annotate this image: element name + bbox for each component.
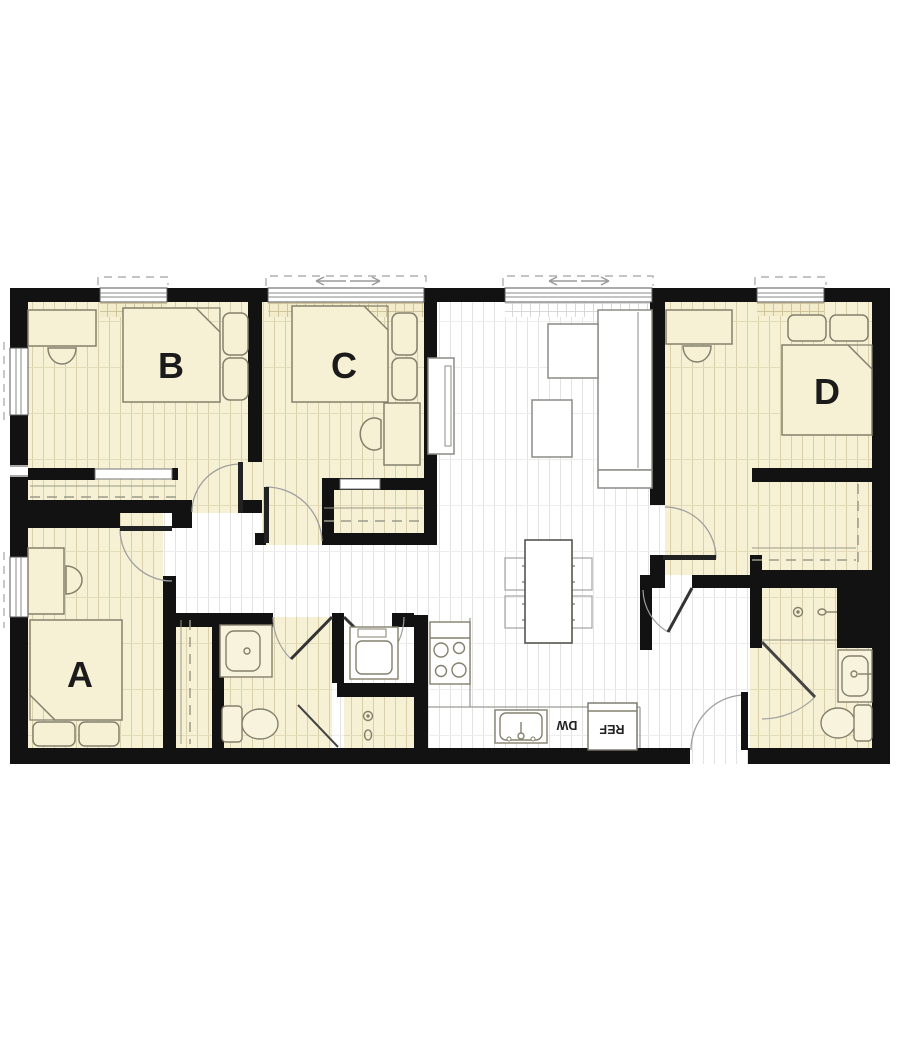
bedroom-a-label: A — [67, 654, 93, 695]
dining-table-icon — [525, 540, 572, 643]
toilet-tank — [222, 706, 242, 742]
window-c-top — [268, 288, 424, 302]
pillow-icon — [830, 315, 868, 341]
desk-icon — [28, 548, 64, 614]
pillow-icon — [392, 358, 417, 400]
burner-icon — [454, 643, 465, 654]
faucet-icon — [244, 648, 250, 654]
sofa-icon — [598, 310, 652, 470]
pillow-icon — [223, 358, 248, 400]
toilet-icon — [242, 709, 278, 739]
toilet-icon — [821, 708, 855, 738]
shower-1-floor — [344, 695, 425, 748]
faucet-icon — [851, 671, 857, 677]
faucet-icon — [518, 733, 524, 739]
wall-break — [10, 465, 28, 477]
bedroom-c-label: C — [331, 345, 357, 386]
floor-plan-page: DW REF B — [0, 0, 900, 1051]
floor-plan-drawing: DW REF B — [0, 0, 900, 1051]
laundry-closet — [350, 627, 398, 679]
desk-icon — [28, 310, 96, 346]
desk-chair-icon — [360, 418, 381, 450]
wall-b-c — [248, 302, 262, 462]
toilet-tank — [854, 705, 872, 741]
burner-icon — [434, 643, 448, 657]
dishwasher-label: DW — [556, 718, 577, 732]
bathroom-sink-icon — [226, 631, 260, 671]
bedroom-d-label: D — [814, 371, 840, 412]
pillow-icon — [79, 722, 119, 746]
window-b-left — [10, 348, 28, 415]
desk-icon — [666, 310, 732, 344]
desk-icon — [384, 403, 420, 465]
sill-band — [757, 302, 824, 316]
window-a-left — [10, 557, 28, 617]
washer-panel — [358, 629, 386, 637]
burner-icon — [436, 666, 447, 677]
pillow-icon — [33, 722, 75, 746]
refrigerator-label: REF — [599, 722, 624, 736]
sliding-window-arrows — [316, 277, 609, 285]
coffee-table-icon — [532, 400, 572, 457]
chaise-icon — [548, 324, 598, 378]
window-b-top — [100, 288, 167, 302]
washer-door — [356, 641, 392, 674]
burner-icon — [452, 663, 466, 677]
pillow-icon — [223, 313, 248, 355]
bedroom-b-label: B — [158, 345, 184, 386]
pillow-icon — [392, 313, 417, 355]
faucet-handle — [507, 737, 511, 741]
sofa-armrest — [598, 470, 652, 488]
window-living-top — [505, 288, 652, 302]
window-d-top — [757, 288, 824, 302]
tv-icon — [445, 366, 451, 446]
pillow-icon — [788, 315, 826, 341]
faucet-handle — [531, 737, 535, 741]
